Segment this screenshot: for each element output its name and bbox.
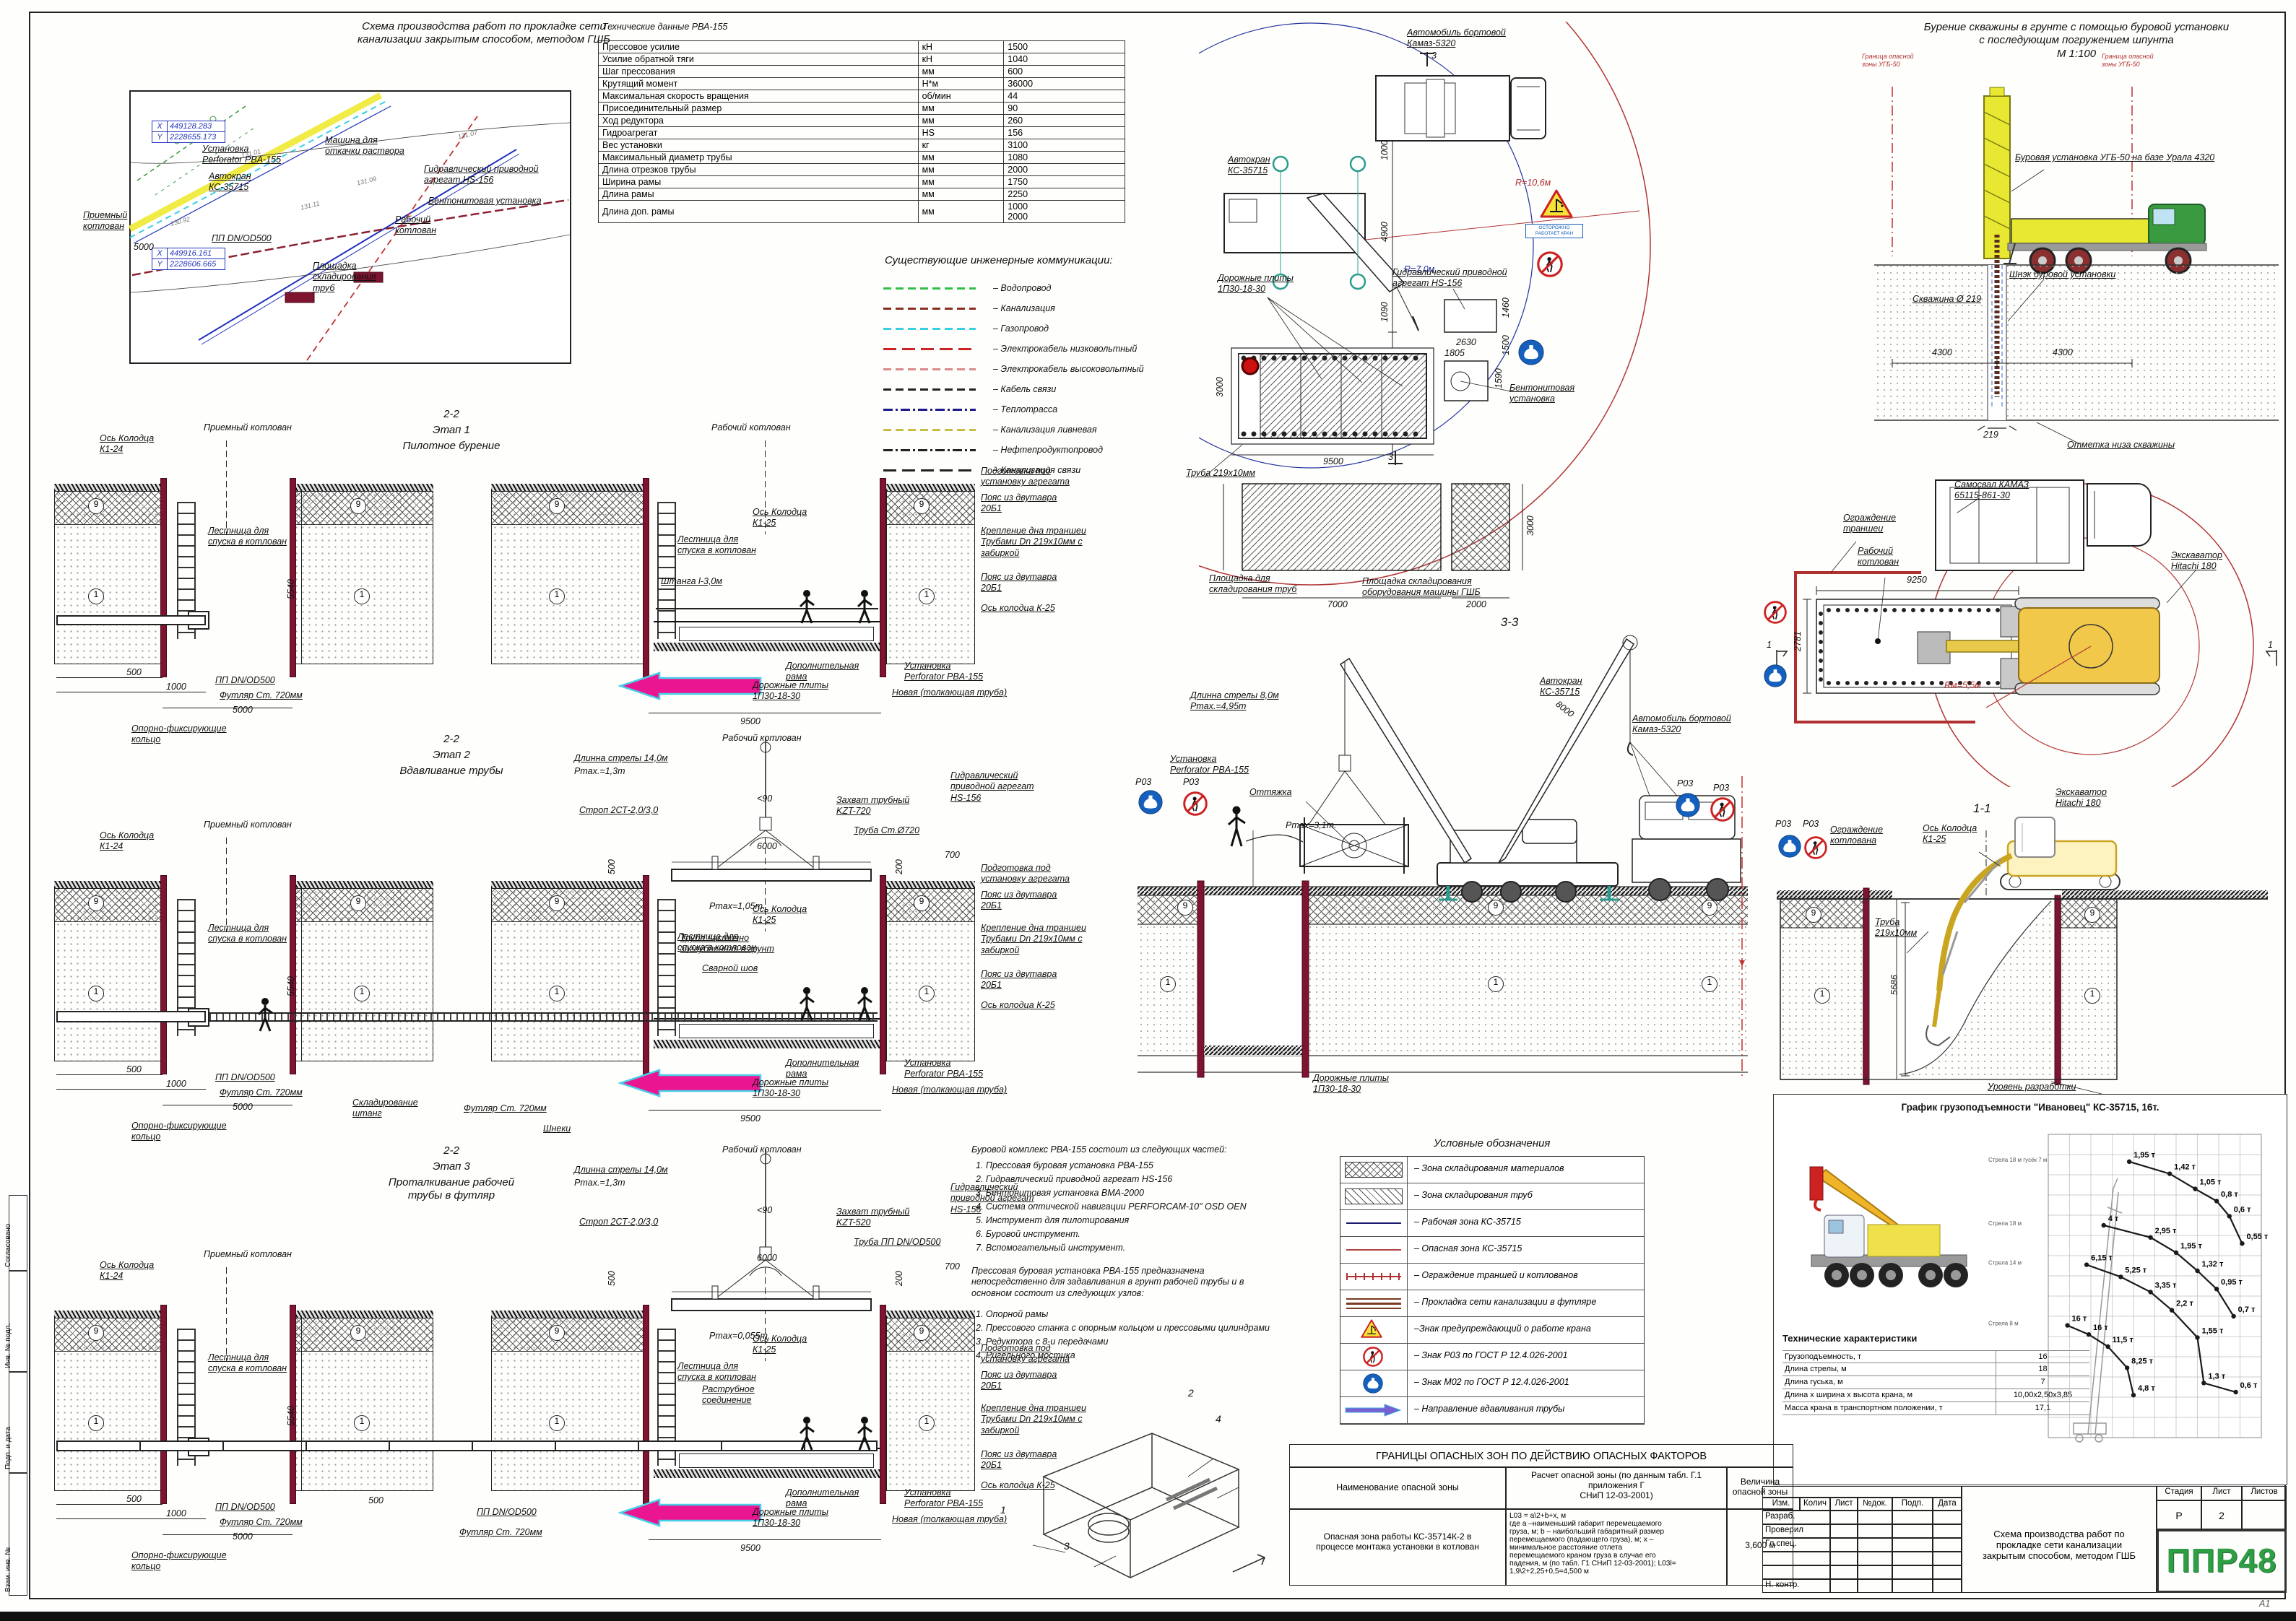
- fence-label: Ограждение котлована: [1830, 825, 1883, 847]
- boom-note-label: Длинна стрелы 8,0м Pmax.=4,95m: [1190, 690, 1279, 713]
- p03-label: Р03: [1803, 819, 1819, 830]
- crane-photo: [1782, 1139, 1985, 1309]
- d700-label: 700: [945, 850, 960, 861]
- pmax-in-label: Pmax=0,055m.: [709, 1331, 770, 1342]
- 2-label: 3. Редуктора с 8-и передачами: [976, 1337, 1108, 1347]
- series-name: Стрела 8 м: [1988, 1321, 2019, 1327]
- no-pedestrian-sign-p03-icon: [1710, 797, 1735, 822]
- titleblock-cell: [1762, 1565, 1830, 1579]
- comm-line-swatch: [883, 348, 976, 350]
- symbol-label: –Знак предупреждающий о работе крана: [1414, 1324, 1591, 1334]
- material-mark: 9: [1488, 900, 1504, 916]
- p03-sign: [1537, 251, 1563, 281]
- d500b-label: 500: [607, 859, 618, 874]
- rastrub-label: Раструбное соединение: [702, 1384, 755, 1407]
- truba-label: Труба ПП DN/OD500: [854, 1237, 940, 1248]
- desc-label: Вдавливание трубы: [372, 765, 531, 778]
- tech-cell: Шаг прессования: [599, 66, 919, 78]
- helmet-sign-m02-icon: [1778, 835, 1801, 858]
- d2781-label: 2781: [1793, 631, 1803, 651]
- desc-label: Проталкивание рабочей трубы в футляр: [372, 1176, 531, 1203]
- 3-label: 4. Ригельного мостика: [976, 1350, 1075, 1361]
- tech-cell: HS: [918, 127, 1004, 139]
- titleblock-cell: [1858, 1565, 1892, 1579]
- coord-y-value: 2228655.173: [168, 132, 218, 142]
- plates-label: Дорожные плиты 1П30-18-30: [1218, 273, 1294, 295]
- 4-label: 5. Инструмент для пилотирования: [976, 1215, 1129, 1226]
- data-point: [2227, 1214, 2232, 1218]
- material-mark: 1: [549, 1415, 565, 1431]
- pp-label: ПП DN/OD500: [215, 1502, 275, 1513]
- titleblock-cell: [1858, 1511, 1892, 1524]
- p03-label: Р03: [1135, 777, 1151, 788]
- material-mark: 1: [88, 1415, 104, 1431]
- data-point: [2102, 1223, 2106, 1227]
- direction-arrow-icon: [1344, 1403, 1402, 1417]
- crane-hook-rig: [663, 1149, 880, 1318]
- truba-part-label: Труба частично заглубленная в грунт: [680, 933, 774, 955]
- symbol-label: – Направление вдавливания трубы: [1414, 1404, 1564, 1414]
- crane-label: Автокран КС-35715: [1228, 155, 1270, 177]
- code-label: 2-2: [372, 408, 531, 421]
- futlyar-label: Футляр Ст. 720мм: [220, 1087, 303, 1098]
- symbol-row: – Зона складирования труб: [1340, 1183, 1644, 1210]
- ground-block: [886, 491, 975, 664]
- p03-label: Р03: [1775, 819, 1791, 830]
- d9250-label: 9250: [1907, 575, 1927, 586]
- tech-cell: 90: [1004, 103, 1125, 115]
- tech-cell: 1500: [1004, 41, 1125, 53]
- desc-label: Пилотное бурение: [372, 440, 531, 453]
- boom-label: Длинна стрелы 14,0м: [574, 1165, 668, 1175]
- note3-label: Крепление дна траншеи Трубами Dn 219x10м…: [981, 923, 1086, 956]
- stage-2-section: 2-2Этап 2Вдавливание трубы99991111 Прием…: [43, 733, 1127, 1144]
- tech-cell: 1750: [1004, 176, 1125, 188]
- note2-label: Пояс из двутавра 20Б1: [981, 492, 1057, 515]
- data-point: [2148, 1235, 2152, 1240]
- symbol-row: –Знак предупреждающий о работе крана: [1340, 1317, 1644, 1344]
- zahvat-label: Захват трубный KZT-520: [836, 1207, 909, 1229]
- plates-label: Дорожные плиты 1П30-18-30: [753, 1077, 828, 1100]
- symbol-label: – Зона складирования материалов: [1414, 1163, 1564, 1173]
- os-k25-label: Ось колодца К-25: [981, 603, 1055, 614]
- material-mark: 1: [354, 1415, 370, 1431]
- note2-label: Пояс из двутавра 20Б1: [981, 890, 1057, 912]
- point-label: 3,35 т: [2155, 1281, 2177, 1290]
- boom-label: Длинна стрелы 14,0м: [574, 753, 668, 764]
- strop-label: Строп 2СТ-2,0/3,0: [579, 805, 658, 816]
- no-pedestrian-sign-p03-icon: [1183, 791, 1208, 816]
- titleblock-cell: [1933, 1552, 1962, 1565]
- section-3-3-drawing: [1127, 614, 1762, 1090]
- label-label: – Электрокабель высоковольтный: [993, 364, 1144, 375]
- svar-label: Сварной шов: [702, 963, 758, 974]
- data-point: [2214, 1199, 2219, 1203]
- danger-cell: Наименование опасной зоны: [1289, 1467, 1506, 1509]
- material-mark: 1: [549, 986, 565, 1001]
- truba-label: Труба 219x10мм: [1186, 468, 1255, 479]
- data-point: [2084, 1262, 2089, 1266]
- storage-pipes-label: Площадка для складирования труб: [1209, 573, 1296, 596]
- titleblock-cell: Листов: [2242, 1486, 2287, 1500]
- ground-block: [54, 491, 163, 664]
- sheet-pile-wall: [160, 1305, 167, 1504]
- note3-label: Крепление дна траншеи Трубами Dn 219x10м…: [981, 526, 1086, 559]
- m02-swatch: [1340, 1370, 1408, 1396]
- pump-label: Машина для откачки раствора: [325, 135, 404, 157]
- helmet-sign-m02-icon: [1676, 793, 1700, 817]
- symbol-label: – Зона складирования труб: [1414, 1190, 1533, 1200]
- sheet-pile-wall: [160, 875, 167, 1074]
- 0-label: 1. Прессовая буровая установка РВА-155: [976, 1160, 1153, 1171]
- bentonite-label: Бентонитовая установка: [1509, 383, 1574, 405]
- point-label: 4,8 т: [2138, 1384, 2155, 1393]
- frame-side-label: Инв. № подл.: [4, 1324, 12, 1368]
- tech-cell: мм: [918, 188, 1004, 201]
- symbol-row: – Опасная зона КС-35715: [1340, 1237, 1644, 1264]
- frame-side-label: Взам. инв. №: [4, 1547, 12, 1592]
- push-direction-arrow-icon: [618, 672, 762, 700]
- symbol-label: – Прокладка сети канализации в футляре: [1414, 1297, 1596, 1307]
- stage-1-section: 2-2Этап 1Пилотное бурение99991111Приемны…: [43, 408, 1127, 736]
- comm-line-swatch: [883, 388, 976, 391]
- point-label: 1,95 т: [2180, 1242, 2202, 1251]
- sec3-label: 3: [1431, 51, 1437, 61]
- data-point: [2231, 1314, 2235, 1318]
- data-point: [2201, 1381, 2206, 1385]
- section-1-1-panel: 1-1Ось Колодца К1-25Экскаватор Hitachi 1…: [1762, 787, 2289, 1126]
- worker-figure-icon: [794, 588, 819, 626]
- material-mark: 9: [2084, 907, 2100, 923]
- title-label: Технические характеристики: [1782, 1333, 1917, 1344]
- titleblock-cell: [1762, 1552, 1830, 1565]
- p03-swatch: [1340, 1344, 1408, 1370]
- data-point: [2087, 1332, 2091, 1337]
- frame-side-box: Подп. и дата: [9, 1372, 27, 1473]
- sheet-pile-wall: [643, 1305, 649, 1504]
- diag-swatch: [1340, 1183, 1408, 1209]
- pit-label: Рабочий котлован: [1858, 546, 1899, 568]
- helmet-sign-m02-icon: [1363, 1373, 1383, 1394]
- material-mark: 9: [914, 895, 930, 911]
- tech-cell: Ширина рамы: [599, 176, 919, 188]
- d1000-label: 1000: [166, 1508, 186, 1519]
- title-label: 1-1: [1973, 801, 1991, 817]
- triple-swatch: [1340, 1290, 1408, 1316]
- d200-label: 200: [894, 859, 905, 874]
- d500b-label: 500: [607, 1271, 618, 1286]
- d1000-label: 1000: [166, 1079, 186, 1090]
- coord-x-label: X: [152, 121, 168, 131]
- label-label: – Канализация: [993, 303, 1055, 314]
- ladder-label: Лестница для спуска в котлован: [677, 534, 756, 557]
- tech-cell: 260: [1004, 115, 1125, 127]
- point-label: 1,55 т: [2202, 1326, 2224, 1335]
- material-mark: 9: [1702, 900, 1717, 916]
- tech-cell: Крутящий момент: [599, 78, 919, 90]
- os24-label: Ось Колодца К1-24: [100, 1260, 154, 1282]
- tech-cell: 1080: [1004, 152, 1125, 164]
- material-mark: 9: [88, 895, 104, 911]
- material-mark: 1: [88, 986, 104, 1001]
- load-chart: 1,95 т1,42 т1,05 т0,8 т0,6 т0,55 тСтрела…: [1987, 1124, 2276, 1470]
- well-label: Скважина Ø 219: [1912, 294, 1981, 305]
- d1590-label: 1590: [1494, 368, 1504, 388]
- material-mark: 1: [919, 588, 935, 604]
- titleblock-cell: [1858, 1524, 1892, 1538]
- d1000-label: 1000: [166, 682, 186, 692]
- coord-x-value: 449916.161: [168, 248, 214, 258]
- pp-label: ПП DN/OD500: [212, 233, 272, 244]
- unit-label: Установка Perforator PBA-155: [1170, 754, 1249, 776]
- tech-cell: Ход редуктора: [599, 115, 919, 127]
- material-mark: 1: [1702, 976, 1717, 992]
- ladder-label: Лестница для спуска в котлован: [677, 1361, 756, 1383]
- titleblock-cell: [1830, 1524, 1858, 1538]
- titleblock-cell: Колич: [1800, 1498, 1830, 1511]
- priem-label: Приемный котлован: [204, 820, 292, 830]
- point-label: 16 т: [2093, 1324, 2108, 1332]
- point-label: 1,3 т: [2208, 1372, 2225, 1381]
- d5000-label: 5000: [233, 1102, 253, 1113]
- danger-zones-table: ГРАНИЦЫ ОПАСНЫХ ЗОН ПО ДЕЙСТВИЮ ОПАСНЫХ …: [1289, 1444, 1793, 1586]
- d4300a-label: 4300: [1932, 347, 1952, 358]
- point-label: 16 т: [2072, 1315, 2087, 1324]
- material-mark: 9: [1177, 900, 1193, 916]
- sec3-label: 3: [1388, 452, 1393, 463]
- 0-label: 1. Опорной рамы: [976, 1309, 1048, 1320]
- point-label: 6,15 т: [2091, 1254, 2113, 1263]
- worker-figure-icon: [852, 986, 877, 1023]
- point-label: 0,6 т: [2234, 1205, 2251, 1214]
- frame-side-label: Подп. и дата: [4, 1427, 12, 1469]
- point-label: 0,7 т: [2238, 1305, 2256, 1314]
- d500c-label: 500: [368, 1495, 384, 1506]
- coord-x-label: X: [152, 248, 168, 258]
- coord-box-1: X449128.283 Y2228655.173: [152, 121, 225, 143]
- title-label: График грузоподъемности "Ивановец" КС-35…: [1875, 1102, 2185, 1113]
- d9500-label: 9500: [740, 716, 761, 727]
- rab-label: Рабочий котлован: [711, 422, 791, 433]
- danger-cell: Расчет опасной зоны (по данным табл. Г.1…: [1506, 1467, 1727, 1509]
- titleblock-cell: [1830, 1538, 1858, 1552]
- name-label: Этап 3: [372, 1160, 531, 1173]
- p03-label: Р03: [1677, 778, 1693, 789]
- spec-name: Грузоподъемность, т: [1782, 1350, 1996, 1363]
- tech-cell: Максимальный диаметр трубы: [599, 152, 919, 164]
- d5686-label: 5686: [1889, 975, 1900, 995]
- 1-label: 2. Прессового станка с опорным кольцом и…: [976, 1323, 1270, 1334]
- titleblock-cell: [1933, 1565, 1962, 1579]
- unit-label: Установка Perforator PBA-155: [904, 661, 983, 683]
- pipe-label: Труба 219х10мм: [1875, 917, 1917, 939]
- push-direction-arrow-icon: [618, 1069, 762, 1098]
- material-mark: 1: [549, 588, 565, 604]
- coord-box-2: X449916.161 Y2228606.665: [152, 248, 225, 270]
- material-mark: 1: [1814, 988, 1830, 1004]
- pmax-in-label: Pmax=1,05m.: [709, 901, 765, 912]
- titleblock-cell: [1858, 1538, 1892, 1552]
- tech-cell: 36000: [1004, 78, 1125, 90]
- complex-description-panel: Буровой комплекс РВА-155 состоит из след…: [971, 1144, 1325, 1596]
- d9500-label: 9500: [1323, 456, 1343, 467]
- titleblock-cell: [1858, 1579, 1892, 1593]
- mark-label: 1: [2268, 640, 2273, 651]
- coord-y-label: Y: [152, 132, 168, 142]
- spec-name: Длина гуська, м: [1782, 1376, 1996, 1389]
- excavator-plan-drawing: [1762, 469, 2289, 787]
- data-point: [2193, 1186, 2197, 1191]
- plates-label: Дорожные плиты 1П30-18-30: [753, 680, 828, 703]
- ground-block: [54, 1318, 163, 1491]
- xhatch-swatch: [1340, 1157, 1408, 1183]
- material-mark: 9: [1806, 907, 1821, 923]
- work-site-plan-panel: ОСТОРОЖНО РАБОТАЕТ КРАН Автомобиль борто…: [1199, 22, 1856, 621]
- title-label: Бурение скважины в грунте с помощью буро…: [1903, 21, 2250, 61]
- point-label: 0,8 т: [2221, 1190, 2238, 1199]
- coord-x-value: 449128.283: [168, 121, 214, 131]
- d500-label: 500: [126, 1064, 142, 1075]
- material-mark: 9: [549, 895, 565, 911]
- m02-sign: [1764, 664, 1787, 691]
- m02-sign: [1676, 793, 1700, 821]
- pmax-label: Pmax=3,1m.: [1286, 820, 1337, 831]
- m02-sign: [1518, 339, 1544, 369]
- load-curve-1: [2104, 1225, 2234, 1316]
- note4-label: Пояс из двутавра 20Б1: [981, 969, 1057, 991]
- no-pedestrian-sign-p03-icon: [1804, 836, 1827, 859]
- worker-figure-icon: [852, 1415, 877, 1453]
- titleblock-cell: Разраб.: [1762, 1511, 1830, 1524]
- frame-side-label: Согласовано: [4, 1224, 12, 1267]
- 1-label: 2: [1188, 1387, 1194, 1399]
- data-point: [2105, 1344, 2110, 1349]
- data-point: [2131, 1393, 2136, 1397]
- titleblock-cell: [1830, 1552, 1858, 1565]
- unit2-label: Новая (толкающая труба): [892, 687, 1007, 698]
- material-mark: 9: [914, 1325, 930, 1341]
- titleblock-cell: [1933, 1511, 1962, 1524]
- d500-label: 500: [126, 667, 142, 678]
- radius-label: Rм=5,5м: [1944, 680, 1981, 691]
- coord-y-value: 2228606.665: [168, 259, 218, 269]
- symbols-table: – Зона складирования материалов– Зона ск…: [1340, 1156, 1645, 1425]
- os24-label: Ось Колодца К1-24: [100, 830, 154, 853]
- format-label: А1: [2259, 1599, 2270, 1609]
- p03-label: Р03: [1183, 777, 1199, 788]
- recv-pit-label: Приемный котлован: [83, 210, 127, 232]
- data-point: [2148, 1290, 2152, 1294]
- tech-cell: кг: [918, 139, 1004, 152]
- unit2-label: Новая (толкающая труба): [892, 1085, 1007, 1095]
- head2-label: Прессовая буровая установка РВА-155 пред…: [971, 1266, 1244, 1299]
- ground-block: [54, 888, 163, 1061]
- name-label: Этап 1: [372, 424, 531, 437]
- point-label: 0,6 т: [2240, 1381, 2258, 1390]
- crane-warning-caption: ОСТОРОЖНО РАБОТАЕТ КРАН: [1525, 224, 1583, 238]
- symbol-label: – Ограждение траншей и котлованов: [1414, 1270, 1578, 1280]
- no-pedestrian-sign-p03-icon: [1363, 1347, 1383, 1367]
- d5000-label: 5000: [233, 705, 253, 716]
- d4900-label: 4900: [1379, 222, 1390, 242]
- titleblock-cell: [1830, 1511, 1858, 1524]
- crane-chart-panel: Технические характеристикиГрузоподъемнос…: [1773, 1094, 2287, 1485]
- tech-cell: 1000 2000: [1004, 201, 1125, 223]
- symbol-label: – Рабочая зона КС-35715: [1414, 1217, 1521, 1227]
- d200-label: 200: [894, 1271, 905, 1286]
- titleblock-cell: [1892, 1565, 1933, 1579]
- tech-data-table: Прессовое усилиекН1500Усилие обратной тя…: [598, 40, 1125, 223]
- line_red-swatch: [1340, 1237, 1408, 1263]
- tech-cell: Вес установки: [599, 139, 919, 152]
- material-mark: 1: [919, 1415, 935, 1431]
- ring-label: Опорно-фиксирующие кольцо: [131, 1550, 227, 1573]
- symbol-label: – Знак Р03 по ГОСТ Р 12.4.026-2001: [1414, 1350, 1568, 1360]
- spec-name: Масса крана в транспортном положении, т: [1782, 1402, 1996, 1415]
- ring-label: Опорно-фиксирующие кольцо: [131, 1121, 227, 1143]
- tech-cell: мм: [918, 201, 1004, 223]
- tech-cell: Длина рамы: [599, 188, 919, 201]
- tech-cell: мм: [918, 66, 1004, 78]
- ppr48-logo: ППР48: [2157, 1529, 2287, 1593]
- m02-sign: [1138, 790, 1163, 818]
- sheet-pile-wall: [880, 1305, 886, 1504]
- drilling-panel: Бурение скважины в грунте с помощью буро…: [1863, 18, 2289, 466]
- ground-block: [491, 888, 649, 1061]
- plates-label: Дорожные плиты 1П30-18-30: [1313, 1073, 1389, 1095]
- data-point: [2065, 1323, 2069, 1327]
- label-label: – Электрокабель низковольтный: [993, 344, 1137, 355]
- p03-sign: [1183, 791, 1208, 820]
- sheet-pile-wall: [160, 478, 167, 677]
- sheet-pile-wall: [643, 478, 649, 677]
- point-label: 8,25 т: [2131, 1357, 2153, 1365]
- material-mark: 1: [2084, 988, 2100, 1004]
- symbol-row: – Знак М02 по ГОСТ Р 12.4.026-2001: [1340, 1370, 1644, 1397]
- d6000-label: 6000: [757, 1253, 777, 1264]
- axis-label: Ось Колодца К1-25: [1923, 823, 1977, 846]
- data-point: [2127, 1160, 2131, 1164]
- data-point: [2125, 1365, 2129, 1370]
- title-label: 3-3: [1430, 615, 1589, 630]
- point-label: 2,95 т: [2155, 1227, 2177, 1235]
- point-label: 2,2 т: [2176, 1300, 2193, 1308]
- tech-cell: Максимальная скорость вращения: [599, 90, 919, 103]
- titleblock-cell: Схема производства работ по прокладке се…: [1962, 1486, 2157, 1593]
- tech-cell: Длина доп. рамы: [599, 201, 919, 223]
- titleblock-cell: №док.: [1858, 1498, 1892, 1511]
- point-label: 5,25 т: [2125, 1266, 2146, 1274]
- priem-label: Приемный котлован: [204, 1249, 292, 1260]
- d500-label: 500: [126, 1494, 142, 1505]
- symbol-row: – Прокладка сети канализации в футляре: [1340, 1290, 1644, 1317]
- material-mark: 1: [1160, 976, 1176, 992]
- point-label: 1,05 т: [2200, 1178, 2222, 1187]
- fence-label: Ограждение траншеи: [1843, 513, 1896, 535]
- excavator-label: Экскаватор Hitachi 180: [2171, 550, 2222, 573]
- futlyar-label: Футляр Ст. 720мм: [220, 1517, 303, 1528]
- d9500-label: 9500: [740, 1113, 761, 1124]
- material-mark: 9: [549, 1325, 565, 1341]
- pp-label: ПП DN/OD500: [215, 1072, 275, 1083]
- rab-label: Рабочий котлован: [722, 733, 802, 744]
- titleblock-cell: Дата: [1933, 1498, 1962, 1511]
- unit-label: Установка Perforator PBA-155: [904, 1058, 983, 1080]
- d3000-label: 3000: [1215, 377, 1226, 397]
- d5540-label: 5540: [286, 1406, 297, 1426]
- material-mark: 9: [88, 1325, 104, 1341]
- hs-label: Гидравлический приводной агрегат HS-156: [950, 770, 1034, 804]
